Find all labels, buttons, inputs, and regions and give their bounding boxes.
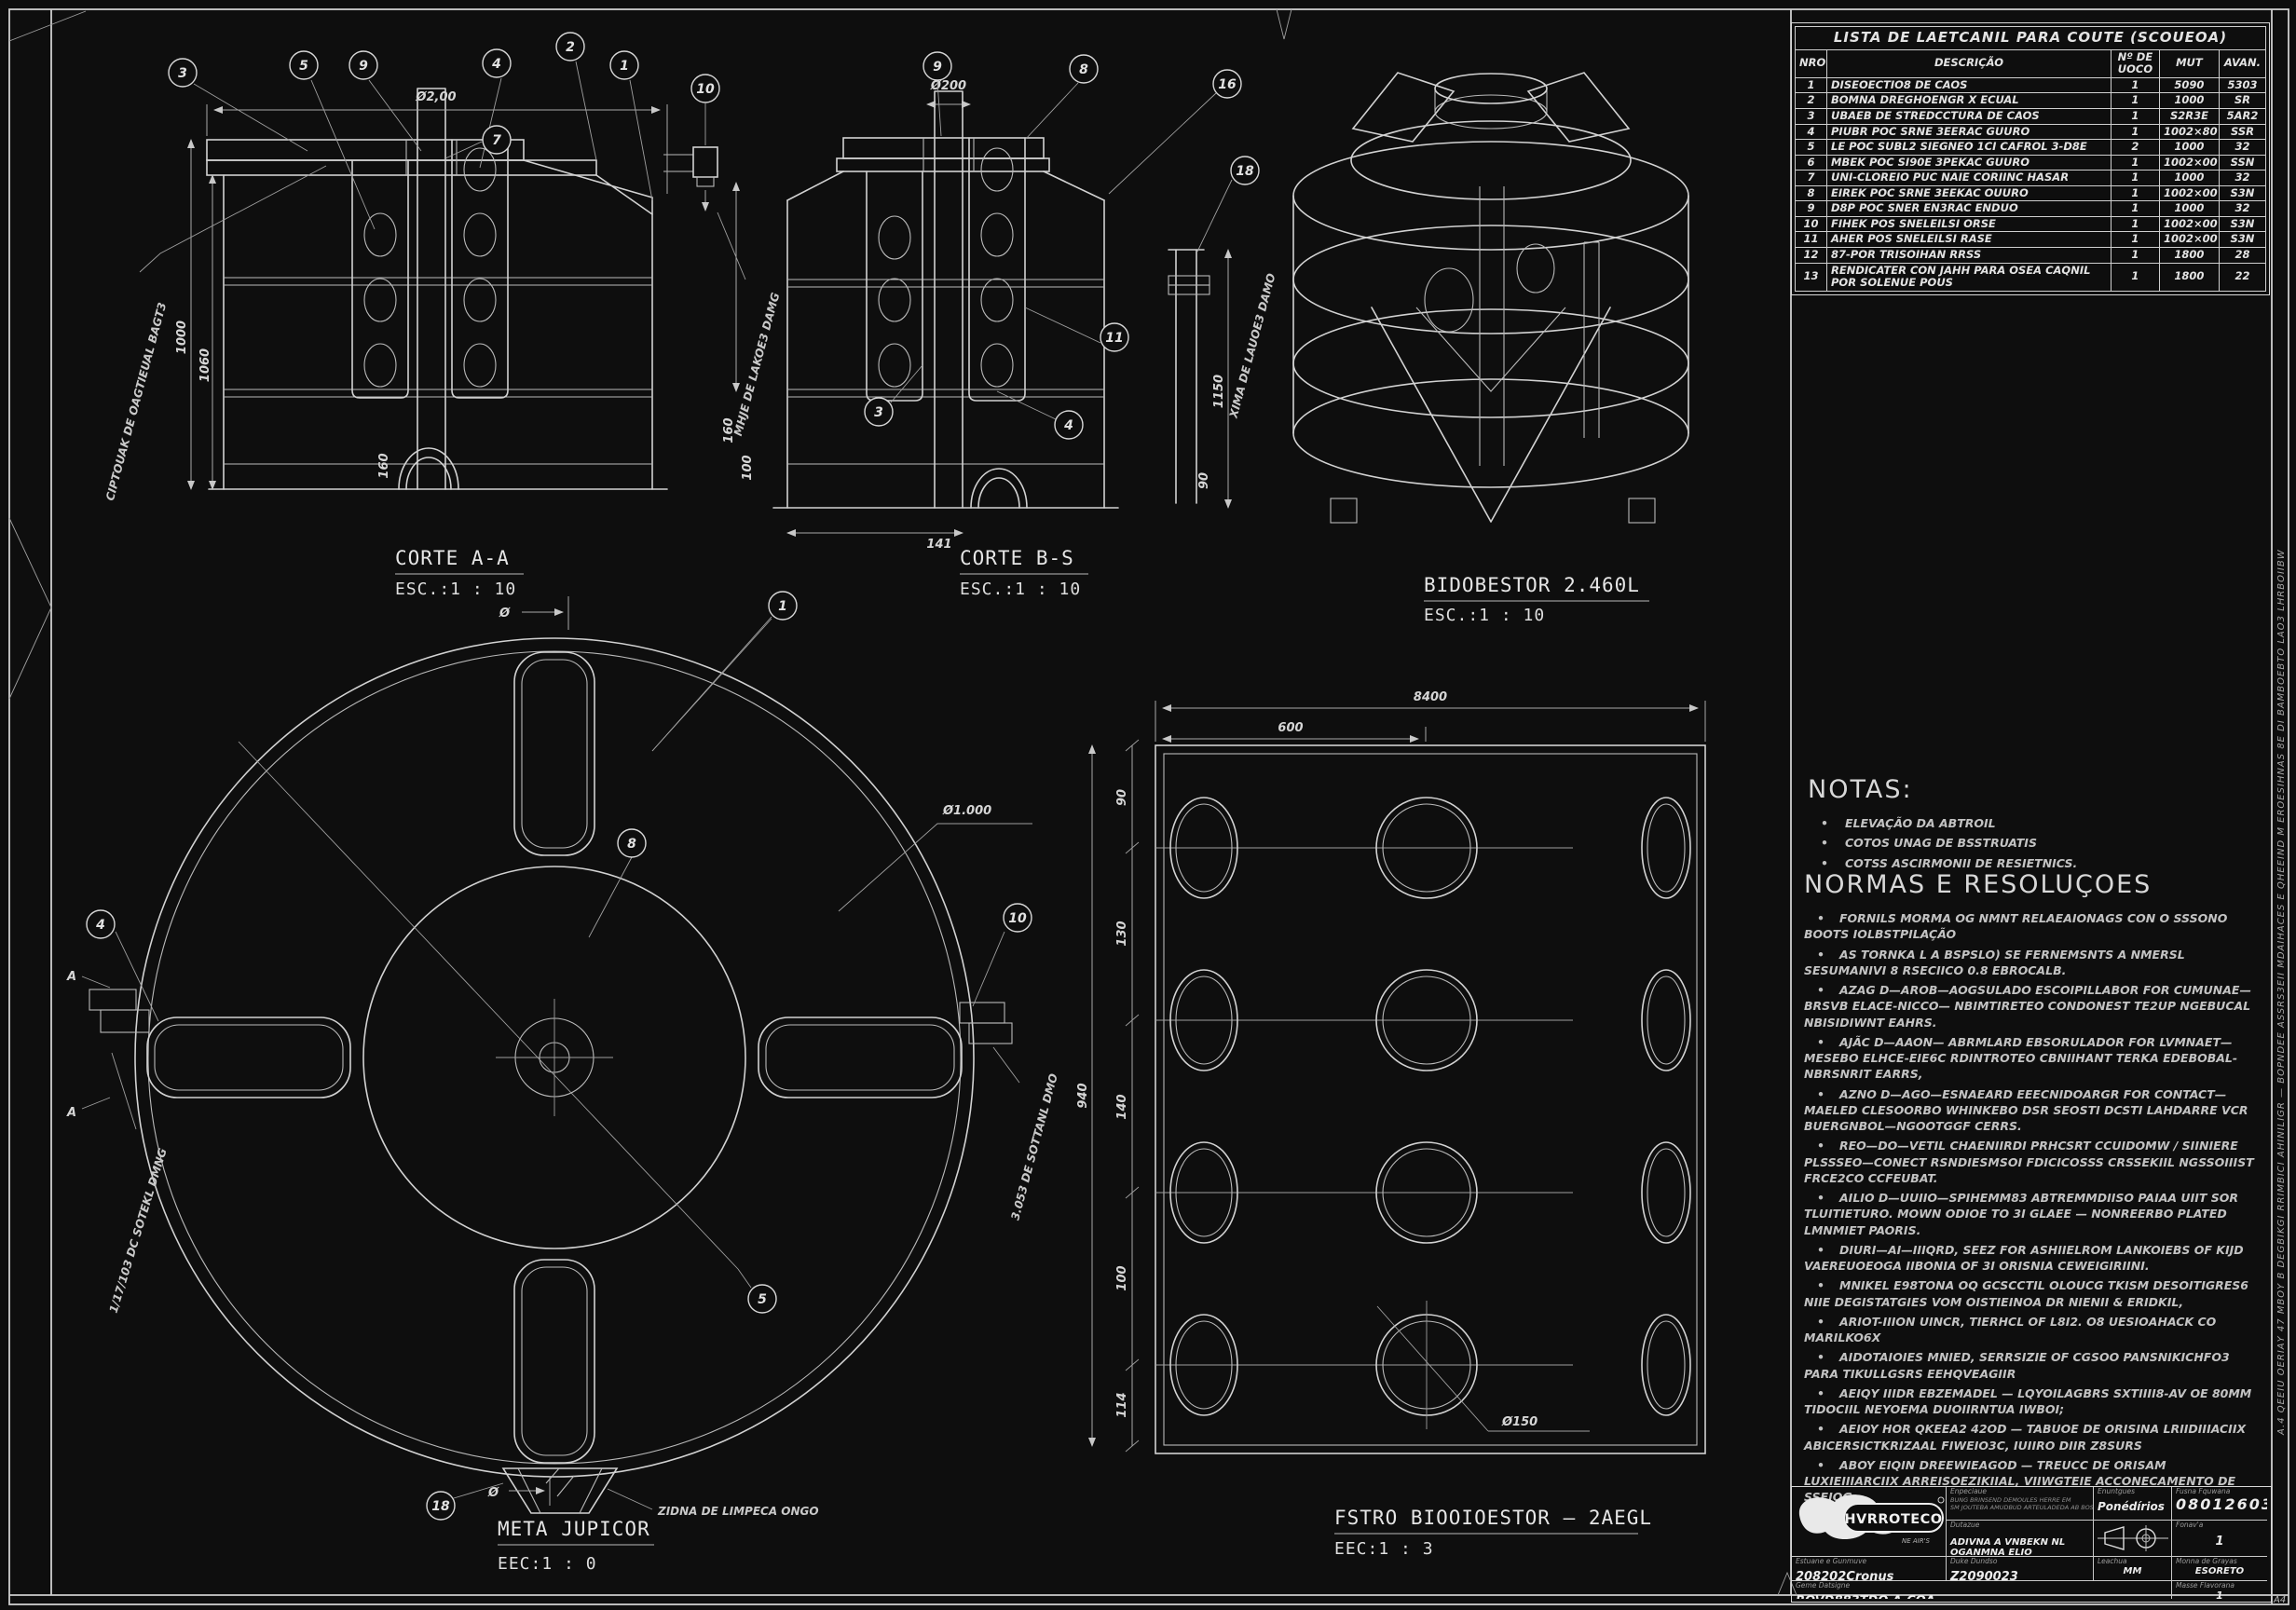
note-plan-bottom: ZIDNA DE LIMPECA ONGO xyxy=(657,1505,819,1518)
company-label: Enpeciaue xyxy=(1950,1488,2089,1496)
cell-no: 5 xyxy=(1796,140,1827,156)
cell-desc: DISEOECTIO8 DE CAOS xyxy=(1827,77,2111,93)
logo-wordmark: HVRROTECO xyxy=(1844,1512,1942,1527)
cell-qty: 1 xyxy=(2111,155,2159,171)
svg-text:8: 8 xyxy=(627,837,636,852)
dim-filter-total-h: 940 xyxy=(1076,1083,1090,1108)
col-descricao: DESCRIÇÃO xyxy=(1827,49,2111,77)
sheet-label: Fonav'a xyxy=(2176,1521,2263,1530)
dim-a-h1: 1000 xyxy=(175,321,189,354)
date-label: Duke Dundso xyxy=(1950,1558,2089,1566)
cell-avan: 32 xyxy=(2219,140,2265,156)
cell-qty: 1 xyxy=(2111,77,2159,93)
svg-text:1: 1 xyxy=(620,59,629,74)
unit-cell: Leachua MM xyxy=(2094,1557,2172,1581)
cell-desc: PIUBR POC SRNE 3EERAC GUURO xyxy=(1827,124,2111,140)
parts-list: LISTA DE LAETCANIL PARA COUTE (SCOUEOA) … xyxy=(1791,22,2270,295)
cell-mut: 5090 xyxy=(2159,77,2219,93)
note-item: COTSS ASCIRMONII DE RESIETNICS. xyxy=(1808,855,2253,871)
cell-qty: 1 xyxy=(2111,248,2159,264)
note-b-right: XIMA DE LAUOE3 DAMO xyxy=(1226,272,1278,420)
dim-a-h2: 1060 xyxy=(198,348,212,382)
table-row: 11AHER POS SNELEILSI RASE11002×00S3N xyxy=(1796,232,2266,248)
dim-filter-partial-w: 600 xyxy=(1278,721,1303,735)
note-plan-right: 3.053 DE SOTTANL DMO xyxy=(1008,1072,1060,1221)
balloon-a-7: 7 xyxy=(483,126,511,154)
balloon-b-16: 16 xyxy=(1213,70,1241,98)
note-a-left: CIPTOUAK DE OAGTIEUAL BAGT3 xyxy=(103,301,169,502)
drawing-title-value: ADIVNA A VNBEKN NL OGANMNA ELIO xyxy=(1950,1537,2089,1557)
cell-avan: 5AR2 xyxy=(2219,108,2265,124)
cell-no: 10 xyxy=(1796,216,1827,232)
cell-desc: AHER POS SNELEILSI RASE xyxy=(1827,232,2111,248)
cell-mut: 1000 xyxy=(2159,201,2219,217)
svg-text:18: 18 xyxy=(431,1499,450,1514)
scale-corte-a: ESC.:1 : 10 xyxy=(395,580,516,599)
table-row: 13RENDICATER CON JAHH PARA OSEA CAQNIL P… xyxy=(1796,263,2266,291)
dim-b-bottom: 141 xyxy=(926,538,951,552)
svg-text:5: 5 xyxy=(299,59,308,74)
date-value: Z2090023 xyxy=(1950,1570,2018,1581)
table-row: 7UNI-CLOREIO PUC NAIE CORIINC HASAR11000… xyxy=(1796,171,2266,186)
view-plan: A A Ø1.000 Ø Ø ZIDNA DE LIMPECA ONGO 1/1… xyxy=(66,592,1060,1574)
note-a-right: MHJE DE LAKOE3 DAMG xyxy=(731,291,783,437)
note-plan-left: 1/17/103 DC SOTEKL DMNG xyxy=(107,1147,170,1315)
dim-plan-diameter: Ø1.000 xyxy=(942,804,991,818)
dim-filter-total-w: 8400 xyxy=(1414,690,1447,704)
cell-avan: 28 xyxy=(2219,248,2265,264)
cell-no: 3 xyxy=(1796,108,1827,124)
cell-avan: 22 xyxy=(2219,263,2265,291)
dim-filter-l4: 100 xyxy=(1115,1265,1129,1290)
cell-mut: 1002×00 xyxy=(2159,185,2219,201)
view-filter: Ø150 8400 600 90 130 140 100 114 940 FST… xyxy=(1076,690,1705,1559)
standard-item: MNIKEL E98TONA OQ GCSCCTIL OLOUCG TKISM … xyxy=(1804,1277,2262,1310)
cell-mut: 1000 xyxy=(2159,140,2219,156)
dim-b-right2: 90 xyxy=(1197,472,1211,489)
cell-no: 9 xyxy=(1796,201,1827,217)
code-value: 208202Cronus xyxy=(1796,1570,1893,1581)
balloon-a-4: 4 xyxy=(483,49,511,77)
balloon-a-5: 5 xyxy=(290,51,318,79)
dim-plan-bottom: Ø xyxy=(487,1486,499,1500)
table-row: 4PIUBR POC SRNE 3EERAC GUURO11002×80SSR xyxy=(1796,124,2266,140)
balloon-b-9: 9 xyxy=(923,52,951,80)
balloon-b-4: 4 xyxy=(1055,411,1083,439)
projection-symbol-icon xyxy=(2094,1521,2172,1556)
cell-avan: SSR xyxy=(2219,124,2265,140)
notes-section: NOTAS: ELEVAÇÃO DA ABTROIL COTOS UNAG DE… xyxy=(1808,775,2253,875)
cell-desc: D8P POC SNER EN3RAC ENDUO xyxy=(1827,201,2111,217)
cell-qty: 1 xyxy=(2111,263,2159,291)
cell-desc: RENDICATER CON JAHH PARA OSEA CAQNIL POR… xyxy=(1827,263,2111,291)
drawing-title-cell: Dutazue ADIVNA A VNBEKN NL OGANMNA ELIO xyxy=(1947,1521,2094,1557)
view-corte-a: Ø2,00 1000 1060 160 160 100 CIPTOUAK DE … xyxy=(103,33,783,599)
table-row: 3UBAEB DE STREDCCTURA DE CAOS1S2R3E5AR2 xyxy=(1796,108,2266,124)
unit-value: MM xyxy=(2098,1566,2167,1576)
cell-avan: S3N xyxy=(2219,185,2265,201)
dim-filter-l2: 130 xyxy=(1115,921,1129,946)
cell-no: 4 xyxy=(1796,124,1827,140)
standard-item: DIURI—AI—IIIQRD, SEEZ FOR ASHIIELROM LAN… xyxy=(1804,1242,2262,1275)
table-row: 1287-POR TRISOIHAN RRSS1180028 xyxy=(1796,248,2266,264)
svg-text:11: 11 xyxy=(1105,331,1123,346)
balloon-p-8: 8 xyxy=(618,829,646,857)
cell-mut: 1002×00 xyxy=(2159,155,2219,171)
approval-cell: Monna de Grayas ESORETO xyxy=(2172,1557,2267,1581)
company-cell: Enpeciaue BUNG BRINSEND DEMOULES HERRE E… xyxy=(1947,1487,2094,1521)
col-mut: MUT xyxy=(2159,49,2219,77)
svg-text:4: 4 xyxy=(95,918,105,933)
drawing-number-cell: Fusna Fquwana 08012603 xyxy=(2172,1487,2267,1521)
standard-item: ARIOT-IIION UINCR, TIERHCL OF L8I2. O8 U… xyxy=(1804,1314,2262,1346)
code-label: Estuane e Gunmuve xyxy=(1796,1558,1942,1566)
standard-item: AEIOY HOR QKEEA2 42OD — TABUOE DE ORISIN… xyxy=(1804,1421,2262,1453)
standard-item: FORNILS MORMA OG NMNT RELAEAIONAGS CON O… xyxy=(1804,910,2262,943)
cell-qty: 1 xyxy=(2111,171,2159,186)
company-line1: BUNG BRINSEND DEMOULES HERRE EM xyxy=(1950,1496,2089,1504)
cell-qty: 1 xyxy=(2111,185,2159,201)
section-marker-a-bottom: A xyxy=(66,1106,76,1120)
balloon-a-3: 3 xyxy=(169,59,197,87)
cell-desc: EIREK POC SRNE 3EEKAC OUURO xyxy=(1827,185,2111,201)
cell-avan: 32 xyxy=(2219,171,2265,186)
logo-cell: HVRROTECO NE AIR'S xyxy=(1792,1487,1947,1557)
table-row: 5LE POC SUBL2 SIEGNEO 1CI CAFROL 3-D8E21… xyxy=(1796,140,2266,156)
notes-heading: NOTAS: xyxy=(1808,775,2253,804)
drafter-cell: Enuntgues Ponédírios EAB xyxy=(2094,1487,2172,1521)
standard-item: AS TORNKA L A BSPSLO) SE FERNEMSNTS A NM… xyxy=(1804,947,2262,979)
drawing-name-value: ROVD883TDO A.COA xyxy=(1796,1594,1935,1599)
revision-value: 1 xyxy=(2176,1590,2263,1599)
dim-filter-l5: 114 xyxy=(1115,1392,1129,1417)
svg-text:3: 3 xyxy=(178,66,187,81)
sheet-size-label: A4 xyxy=(2274,1595,2286,1605)
cell-qty: 1 xyxy=(2111,201,2159,217)
cell-avan: 32 xyxy=(2219,201,2265,217)
balloon-p-1: 1 xyxy=(769,592,797,620)
cell-desc: MBEK POC SI90E 3PEKAC GUURO xyxy=(1827,155,2111,171)
title-corte-a: CORTE A-A xyxy=(395,547,510,569)
table-row: 6MBEK POC SI90E 3PEKAC GUURO11002×00SSN xyxy=(1796,155,2266,171)
balloon-a-1: 1 xyxy=(610,51,638,79)
cell-mut: 1800 xyxy=(2159,263,2219,291)
cell-avan: SSN xyxy=(2219,155,2265,171)
table-row: 2BOMNA DREGHOENGR X ECUAL11000SR xyxy=(1796,93,2266,109)
margin-vertical-text: A.4 QEEIU OERIAY 47 MBOY B DEGBIKGI RRIM… xyxy=(2276,549,2287,1436)
drawing-number-value: 08012603 xyxy=(2176,1496,2263,1513)
balloon-p-4: 4 xyxy=(87,910,115,938)
balloon-b-18: 18 xyxy=(1231,157,1259,184)
standard-item: AILIO D—UUIIO—SPIHEMM83 ABTREMMDIISO PAI… xyxy=(1804,1190,2262,1238)
section-marker-a-top: A xyxy=(66,970,76,984)
cell-no: 2 xyxy=(1796,93,1827,109)
balloon-b-11: 11 xyxy=(1100,323,1128,351)
cell-avan: SR xyxy=(2219,93,2265,109)
col-avan: AVAN. xyxy=(2219,49,2265,77)
standard-item: AZNO D—AGO—ESNAEARD EEECNIDOARGR FOR CON… xyxy=(1804,1086,2262,1135)
standard-item: AEIQY IIIDR EBZEMADEL — LQYOILAGBRS SXTI… xyxy=(1804,1385,2262,1418)
table-row: 10FIHEK POS SNELEILSI ORSE11002×00S3N xyxy=(1796,216,2266,232)
cell-no: 7 xyxy=(1796,171,1827,186)
cell-qty: 1 xyxy=(2111,93,2159,109)
cell-qty: 1 xyxy=(2111,108,2159,124)
dim-plan-top: Ø xyxy=(499,607,511,621)
svg-text:8: 8 xyxy=(1079,62,1088,77)
svg-text:18: 18 xyxy=(1236,164,1254,179)
svg-text:16: 16 xyxy=(1218,77,1237,92)
table-row: 1DISEOECTIO8 DE CAOS150905303 xyxy=(1796,77,2266,93)
cell-mut: 1002×00 xyxy=(2159,216,2219,232)
cell-qty: 2 xyxy=(2111,140,2159,156)
svg-text:3: 3 xyxy=(874,405,883,420)
drafter-value: Ponédírios EAB xyxy=(2098,1500,2165,1521)
svg-text:1: 1 xyxy=(778,599,787,614)
cell-mut: 1002×80 xyxy=(2159,124,2219,140)
balloon-b-8: 8 xyxy=(1070,55,1098,83)
cell-no: 13 xyxy=(1796,263,1827,291)
drawing-sheet: Ø2,00 1000 1060 160 160 100 CIPTOUAK DE … xyxy=(0,0,2296,1610)
svg-text:7: 7 xyxy=(492,133,501,148)
svg-text:9: 9 xyxy=(933,60,942,75)
logo-subtext: NE AIR'S xyxy=(1902,1537,1931,1545)
parts-table-title: LISTA DE LAETCANIL PARA COUTE (SCOUEOA) xyxy=(1796,27,2266,50)
cell-desc: 87-POR TRISOIHAN RRSS xyxy=(1827,248,2111,264)
cell-qty: 1 xyxy=(2111,124,2159,140)
company-logo-icon: HVRROTECO NE AIR'S xyxy=(1792,1487,1947,1557)
unit-label: Leachua xyxy=(2098,1558,2167,1566)
dim-a-right2: 100 xyxy=(741,455,755,480)
cell-mut: 1000 xyxy=(2159,171,2219,186)
cell-no: 8 xyxy=(1796,185,1827,201)
standard-item: AZAG D—AROB—AOGSULADO ESCOIPILLABOR FOR … xyxy=(1804,982,2262,1030)
cell-desc: FIHEK POS SNELEILSI ORSE xyxy=(1827,216,2111,232)
drawing-name-cell: Geme Datsigne ROVD883TDO A.COA xyxy=(1792,1581,2172,1599)
dim-b-right: 1150 xyxy=(1212,375,1226,408)
note-item: COTOS UNAG DE BSSTRUATIS xyxy=(1808,835,2253,851)
dim-filter-hole: Ø150 xyxy=(1501,1415,1537,1429)
sheet-cell: Fonav'a 1 xyxy=(2172,1521,2267,1557)
table-row: 9D8P POC SNER EN3RAC ENDUO1100032 xyxy=(1796,201,2266,217)
cell-avan: S3N xyxy=(2219,216,2265,232)
center-tick-top xyxy=(1277,9,1291,39)
parts-table-header: NRO DESCRIÇÃO Nº DE UOCO MUT AVAN. xyxy=(1796,49,2266,77)
standards-heading: NORMAS E RESOLUÇOES xyxy=(1804,870,2262,899)
scale-corte-b: ESC.:1 : 10 xyxy=(960,580,1081,599)
dim-filter-l1: 90 xyxy=(1115,789,1129,806)
balloon-a-10: 10 xyxy=(691,75,719,102)
balloon-a-2: 2 xyxy=(556,33,584,61)
cell-no: 1 xyxy=(1796,77,1827,93)
balloon-p-18: 18 xyxy=(427,1492,455,1520)
cell-desc: UNI-CLOREIO PUC NAIE CORIINC HASAR xyxy=(1827,171,2111,186)
scale-iso: ESC.:1 : 10 xyxy=(1424,606,1545,625)
cell-mut: 1000 xyxy=(2159,93,2219,109)
svg-text:9: 9 xyxy=(359,59,368,74)
cell-desc: LE POC SUBL2 SIEGNEO 1CI CAFROL 3-D8E xyxy=(1827,140,2111,156)
date-cell: Duke Dundso Z2090023 xyxy=(1947,1557,2094,1581)
standard-item: AJÃC D—AAON— ABRMLARD EBSORULADOR FOR LV… xyxy=(1804,1034,2262,1083)
approval-label: Monna de Grayas xyxy=(2176,1558,2263,1566)
cell-desc: BOMNA DREGHOENGR X ECUAL xyxy=(1827,93,2111,109)
cell-qty: 1 xyxy=(2111,216,2159,232)
scale-filter: EEC:1 : 3 xyxy=(1334,1539,1434,1559)
sheet-value: 1 xyxy=(2176,1535,2263,1549)
cell-avan: 5303 xyxy=(2219,77,2265,93)
standard-item: REO—DO—VETIL CHAENIIRDI PRHCSRT CCUIDOMW… xyxy=(1804,1138,2262,1186)
cell-qty: 1 xyxy=(2111,232,2159,248)
table-row: 8EIREK POC SRNE 3EEKAC OUURO11002×00S3N xyxy=(1796,185,2266,201)
drawing-name-label: Geme Datsigne xyxy=(1796,1582,2167,1590)
dim-a-arch: 160 xyxy=(377,453,391,478)
title-corte-b: CORTE B-S xyxy=(960,547,1074,569)
standards-section: NORMAS E RESOLUÇOES FORNILS MORMA OG NMN… xyxy=(1804,870,2262,1509)
projection-symbol-cell xyxy=(2094,1521,2172,1557)
cell-desc: UBAEB DE STREDCCTURA DE CAOS xyxy=(1827,108,2111,124)
svg-text:10: 10 xyxy=(696,82,715,97)
fold-mark-left xyxy=(9,518,51,699)
cell-mut: 1002×00 xyxy=(2159,232,2219,248)
col-qty: Nº DE UOCO xyxy=(2111,49,2159,77)
note-item: ELEVAÇÃO DA ABTROIL xyxy=(1808,815,2253,831)
cell-no: 12 xyxy=(1796,248,1827,264)
cell-avan: S3N xyxy=(2219,232,2265,248)
code-cell: Estuane e Gunmuve 208202Cronus xyxy=(1792,1557,1947,1581)
parts-table: LISTA DE LAETCANIL PARA COUTE (SCOUEOA) … xyxy=(1795,26,2266,292)
standard-item: AIDOTAIOIES MNIED, SERRSIZIE OF CGSOO PA… xyxy=(1804,1349,2262,1382)
balloon-a-9: 9 xyxy=(349,51,377,79)
svg-text:5: 5 xyxy=(758,1292,767,1307)
drafter-label: Enuntgues xyxy=(2098,1488,2167,1496)
view-corte-b: Ø200 1150 141 90 XIMA DE LAUOE3 DAMO 9 8… xyxy=(773,52,1278,599)
view-isometric: BIDOBESTOR 2.460L ESC.:1 : 10 xyxy=(1293,73,1688,625)
title-plan: META JUPICOR xyxy=(498,1518,650,1540)
balloon-b-3: 3 xyxy=(865,398,893,426)
drawing-title-label: Dutazue xyxy=(1950,1521,2089,1530)
balloon-p-5: 5 xyxy=(748,1285,776,1313)
revision-cell: Masse Flavorana 1 xyxy=(2172,1581,2267,1599)
dim-filter-l3: 140 xyxy=(1115,1094,1129,1119)
svg-text:2: 2 xyxy=(566,40,575,55)
svg-text:4: 4 xyxy=(491,57,501,72)
company-line2: SM JOUTEBA AMUDBUD ARTEULADEDA AB BOSSAU… xyxy=(1950,1504,2089,1511)
title-block: HVRROTECO NE AIR'S Enpeciaue BUNG BRINSE… xyxy=(1791,1486,2272,1603)
scale-plan: EEC:1 : 0 xyxy=(498,1554,597,1574)
dim-a-width: Ø2,00 xyxy=(415,90,456,104)
col-nro: NRO xyxy=(1796,49,1827,77)
cell-mut: S2R3E xyxy=(2159,108,2219,124)
cell-mut: 1800 xyxy=(2159,248,2219,264)
dim-b-width: Ø200 xyxy=(930,79,966,93)
title-filter: FSTRO BIOOIOESTOR – 2AEGL xyxy=(1334,1507,1652,1529)
fold-mark-topleft xyxy=(9,11,86,41)
title-iso: BIDOBESTOR 2.460L xyxy=(1424,574,1640,596)
cell-no: 11 xyxy=(1796,232,1827,248)
svg-text:10: 10 xyxy=(1008,911,1027,926)
cell-no: 6 xyxy=(1796,155,1827,171)
svg-text:4: 4 xyxy=(1063,418,1073,433)
balloon-p-10: 10 xyxy=(1004,904,1032,932)
approval-value: ESORETO xyxy=(2176,1566,2263,1576)
